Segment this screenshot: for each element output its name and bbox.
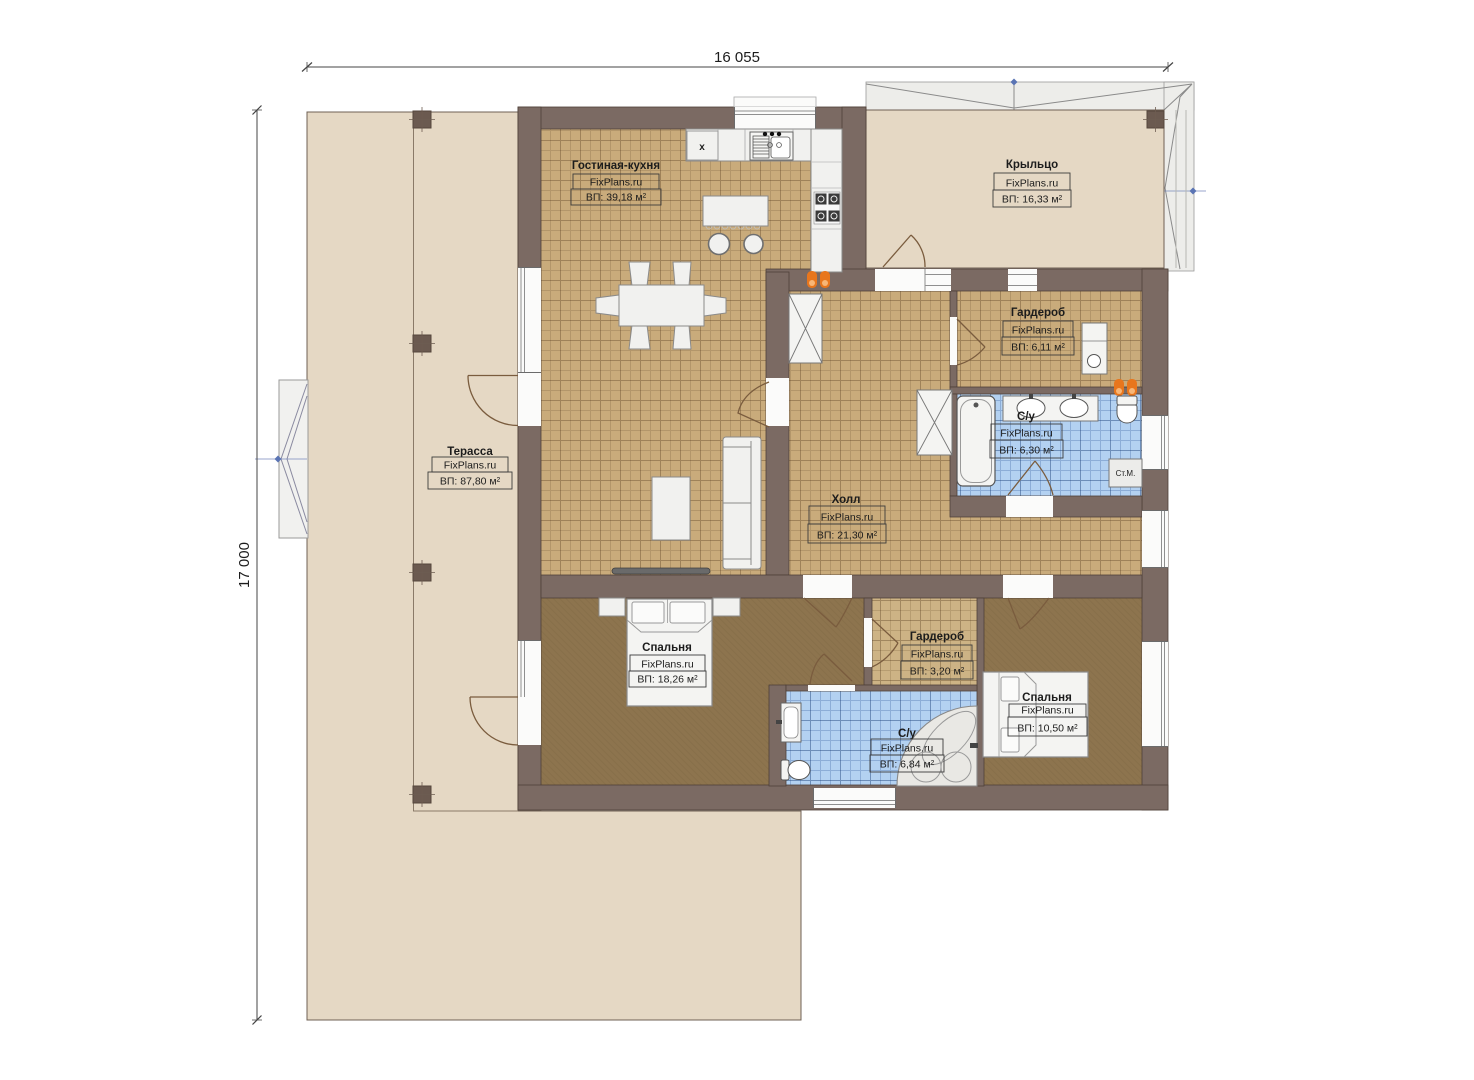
svg-text:Спальня: Спальня <box>1022 692 1072 704</box>
svg-text:FixPlans.ru: FixPlans.ru <box>1000 428 1053 440</box>
svg-text:ВП: 6,11 м²: ВП: 6,11 м² <box>1011 342 1065 354</box>
svg-text:FixPlans.ru: FixPlans.ru <box>590 177 643 189</box>
svg-text:Холл: Холл <box>832 494 861 506</box>
svg-text:FixPlans.ru: FixPlans.ru <box>1006 178 1059 190</box>
svg-text:С/у: С/у <box>898 728 917 740</box>
svg-text:FixPlans.ru: FixPlans.ru <box>821 512 874 524</box>
svg-text:Гостиная-кухня: Гостиная-кухня <box>572 160 660 172</box>
svg-text:С/у: С/у <box>1017 411 1036 423</box>
svg-text:FixPlans.ru: FixPlans.ru <box>1021 705 1074 717</box>
svg-text:Гардероб: Гардероб <box>1011 307 1065 319</box>
svg-text:Гардероб: Гардероб <box>910 631 964 643</box>
svg-text:ВП: 87,80 м²: ВП: 87,80 м² <box>440 476 501 488</box>
svg-text:Крыльцо: Крыльцо <box>1006 159 1058 171</box>
svg-text:FixPlans.ru: FixPlans.ru <box>641 659 694 671</box>
svg-text:ВП: 3,20 м²: ВП: 3,20 м² <box>910 666 965 678</box>
svg-text:FixPlans.ru: FixPlans.ru <box>911 649 964 661</box>
svg-text:FixPlans.ru: FixPlans.ru <box>444 460 497 472</box>
svg-text:x: x <box>699 142 705 153</box>
svg-text:ВП: 16,33 м²: ВП: 16,33 м² <box>1002 194 1063 206</box>
svg-text:ВП: 18,26 м²: ВП: 18,26 м² <box>637 674 698 686</box>
svg-text:16 055: 16 055 <box>714 49 760 66</box>
svg-text:ВП: 6,84 м²: ВП: 6,84 м² <box>880 759 935 771</box>
svg-text:ВП: 21,30 м²: ВП: 21,30 м² <box>817 530 878 542</box>
svg-text:ВП: 10,50 м²: ВП: 10,50 м² <box>1017 723 1078 735</box>
svg-text:FixPlans.ru: FixPlans.ru <box>881 743 934 755</box>
svg-text:17 000: 17 000 <box>236 542 253 588</box>
svg-text:Ст.М.: Ст.М. <box>1116 469 1136 478</box>
svg-text:Терасса: Терасса <box>447 446 493 458</box>
svg-text:Спальня: Спальня <box>642 642 692 654</box>
svg-text:FixPlans.ru: FixPlans.ru <box>1012 325 1065 337</box>
svg-text:ВП: 39,18 м²: ВП: 39,18 м² <box>586 192 647 204</box>
svg-text:ВП: 6,30 м²: ВП: 6,30 м² <box>999 445 1054 457</box>
